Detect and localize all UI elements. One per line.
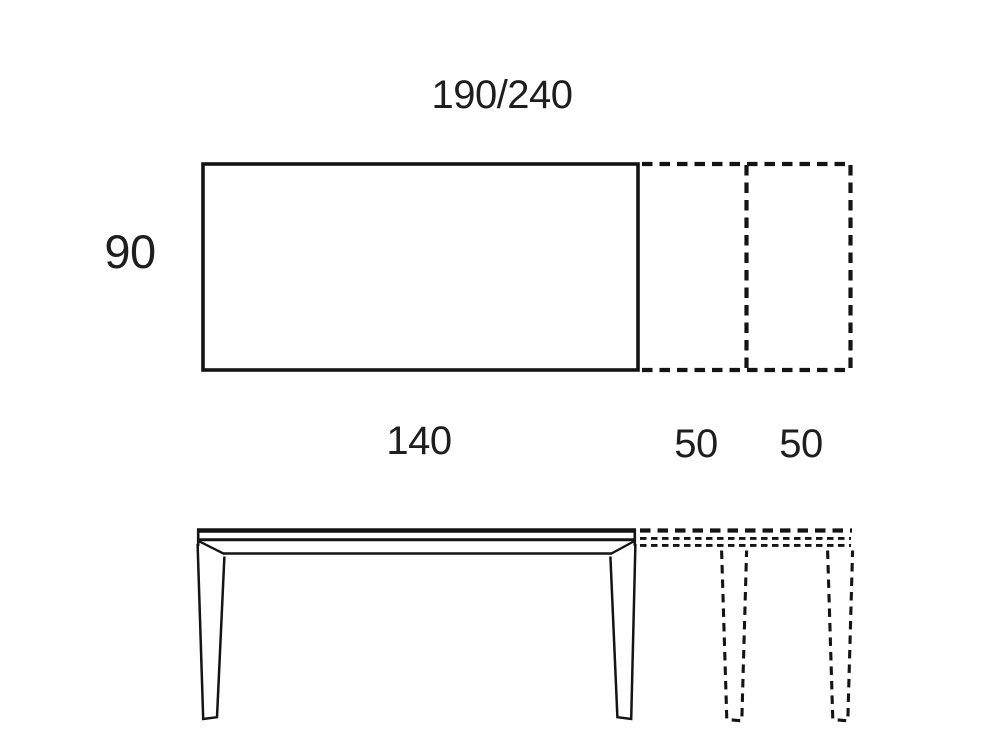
- plan-tabletop-solid-outline: [203, 164, 638, 370]
- elevation-closed-length-dimension-label: 140: [386, 421, 451, 461]
- elevation-apron-right-bevel: [611, 541, 635, 554]
- elevation-view: [197, 529, 853, 721]
- elevation-right-leg: [610, 544, 635, 719]
- plan-depth-dimension-label: 90: [104, 228, 155, 275]
- elevation-apron-left-bevel: [199, 541, 225, 554]
- elevation-extension-leg-2-dashed: [828, 551, 853, 721]
- elevation-left-leg: [198, 544, 225, 719]
- elevation-extension-2-dimension-label: 50: [779, 424, 823, 464]
- dimension-diagram: 190/240 90 140 50 50: [0, 0, 1000, 750]
- elevation-extension-1-dimension-label: 50: [674, 424, 718, 464]
- elevation-extension-leg-1-dashed: [722, 551, 747, 721]
- plan-width-dimension-label: 190/240: [431, 75, 572, 115]
- plan-view: [203, 164, 851, 370]
